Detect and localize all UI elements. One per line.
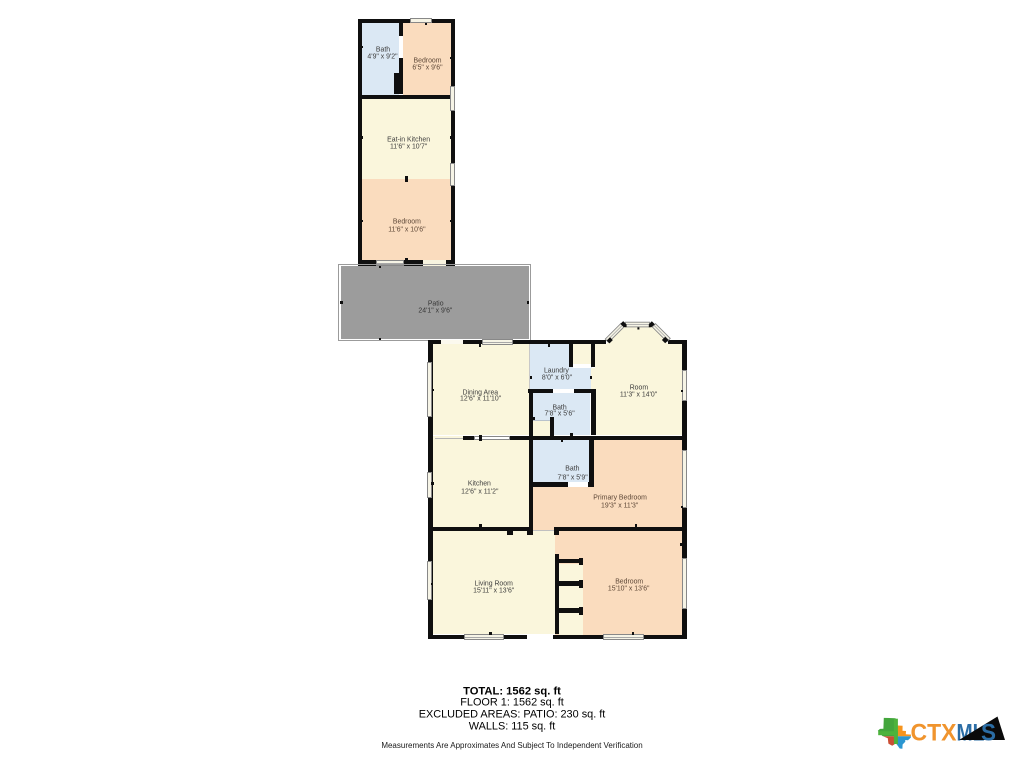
svg-text:S: S — [981, 720, 996, 747]
svg-text:CTX: CTX — [911, 720, 958, 747]
